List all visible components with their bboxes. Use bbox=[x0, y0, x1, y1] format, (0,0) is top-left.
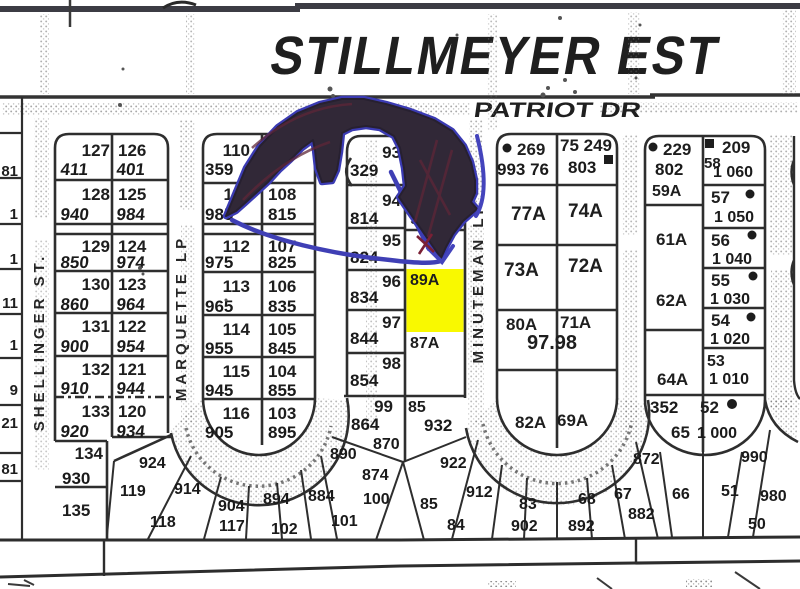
svg-text:66: 66 bbox=[672, 486, 690, 503]
svg-text:870: 870 bbox=[373, 436, 400, 453]
svg-text:890: 890 bbox=[330, 446, 357, 463]
svg-text:1: 1 bbox=[10, 206, 18, 223]
svg-text:SHELLINGER ST.: SHELLINGER ST. bbox=[31, 253, 48, 432]
svg-text:401: 401 bbox=[116, 160, 146, 179]
svg-text:123: 123 bbox=[118, 275, 146, 294]
svg-text:67: 67 bbox=[614, 486, 632, 503]
svg-text:133: 133 bbox=[82, 402, 110, 421]
svg-text:54: 54 bbox=[711, 311, 730, 330]
svg-text:116: 116 bbox=[223, 404, 250, 423]
svg-text:99: 99 bbox=[374, 397, 393, 416]
svg-text:975: 975 bbox=[205, 253, 233, 272]
svg-text:854: 854 bbox=[350, 371, 379, 390]
svg-text:9: 9 bbox=[10, 382, 18, 399]
svg-text:100: 100 bbox=[363, 491, 390, 508]
svg-text:940: 940 bbox=[60, 205, 90, 224]
svg-text:932: 932 bbox=[424, 416, 452, 435]
svg-text:229: 229 bbox=[663, 140, 691, 159]
svg-text:835: 835 bbox=[268, 297, 296, 316]
svg-text:84: 84 bbox=[447, 517, 465, 534]
svg-text:128: 128 bbox=[82, 185, 110, 204]
svg-text:912: 912 bbox=[466, 484, 493, 501]
svg-text:73A: 73A bbox=[504, 260, 539, 281]
svg-text:115: 115 bbox=[223, 362, 250, 381]
svg-text:59A: 59A bbox=[652, 183, 682, 200]
svg-text:101: 101 bbox=[331, 513, 358, 530]
svg-text:814: 814 bbox=[350, 209, 379, 228]
svg-text:924: 924 bbox=[139, 455, 166, 472]
svg-text:97: 97 bbox=[382, 313, 401, 332]
svg-text:993 76: 993 76 bbox=[497, 160, 549, 179]
svg-text:1 040: 1 040 bbox=[712, 251, 752, 268]
svg-text:89A: 89A bbox=[410, 272, 440, 289]
svg-text:895: 895 bbox=[268, 423, 296, 442]
svg-text:11: 11 bbox=[2, 295, 18, 312]
svg-text:1: 1 bbox=[10, 337, 18, 354]
svg-text:974: 974 bbox=[116, 253, 147, 272]
svg-text:955: 955 bbox=[205, 339, 233, 358]
svg-text:119: 119 bbox=[120, 483, 146, 500]
svg-text:894: 894 bbox=[263, 491, 290, 508]
svg-text:352: 352 bbox=[650, 398, 678, 417]
svg-text:834: 834 bbox=[350, 288, 379, 307]
svg-text:864: 864 bbox=[351, 415, 380, 434]
svg-text:882: 882 bbox=[628, 506, 655, 523]
svg-text:802: 802 bbox=[655, 160, 683, 179]
svg-text:920: 920 bbox=[60, 422, 90, 441]
svg-text:104: 104 bbox=[268, 362, 297, 381]
svg-text:PATRIOT DR: PATRIOT DR bbox=[472, 99, 642, 122]
svg-text:984: 984 bbox=[116, 205, 147, 224]
svg-text:945: 945 bbox=[205, 381, 233, 400]
svg-text:121: 121 bbox=[118, 360, 146, 379]
svg-text:120: 120 bbox=[118, 402, 146, 421]
svg-text:83: 83 bbox=[519, 496, 537, 513]
svg-text:905: 905 bbox=[205, 423, 233, 442]
svg-text:892: 892 bbox=[568, 518, 595, 535]
svg-text:1 020: 1 020 bbox=[710, 331, 750, 348]
svg-text:102: 102 bbox=[271, 521, 298, 538]
svg-text:118: 118 bbox=[150, 514, 176, 531]
svg-text:954: 954 bbox=[116, 337, 147, 356]
svg-text:845: 845 bbox=[268, 339, 296, 358]
svg-text:269: 269 bbox=[517, 140, 545, 159]
svg-text:127: 127 bbox=[82, 141, 110, 160]
svg-text:855: 855 bbox=[268, 381, 296, 400]
svg-text:113: 113 bbox=[223, 277, 250, 296]
svg-text:359: 359 bbox=[205, 160, 233, 179]
svg-text:914: 914 bbox=[174, 481, 201, 498]
svg-text:126: 126 bbox=[118, 141, 146, 160]
svg-text:910: 910 bbox=[60, 379, 90, 398]
svg-text:1 030: 1 030 bbox=[710, 291, 750, 308]
svg-text:1: 1 bbox=[10, 251, 18, 268]
svg-text:944: 944 bbox=[116, 379, 147, 398]
svg-text:114: 114 bbox=[223, 320, 251, 339]
svg-text:75 249: 75 249 bbox=[560, 136, 612, 155]
svg-text:902: 902 bbox=[511, 518, 538, 535]
svg-text:411: 411 bbox=[60, 160, 89, 179]
svg-text:56: 56 bbox=[711, 231, 730, 250]
svg-text:117: 117 bbox=[219, 518, 245, 535]
svg-text:96: 96 bbox=[382, 272, 401, 291]
svg-text:64A: 64A bbox=[657, 370, 688, 389]
svg-text:844: 844 bbox=[350, 329, 379, 348]
svg-text:1 010: 1 010 bbox=[709, 371, 749, 388]
svg-text:103: 103 bbox=[268, 404, 296, 423]
svg-text:930: 930 bbox=[62, 469, 90, 488]
svg-text:81: 81 bbox=[1, 461, 18, 478]
svg-text:52: 52 bbox=[700, 398, 719, 417]
svg-text:1 050: 1 050 bbox=[714, 209, 754, 226]
svg-text:900: 900 bbox=[60, 337, 90, 356]
svg-text:57: 57 bbox=[711, 188, 730, 207]
svg-text:1 060: 1 060 bbox=[713, 164, 753, 181]
svg-text:61A: 61A bbox=[656, 230, 687, 249]
svg-text:51: 51 bbox=[721, 483, 739, 500]
svg-text:825: 825 bbox=[268, 253, 296, 272]
svg-text:105: 105 bbox=[268, 320, 296, 339]
svg-text:MARQUETTE LP: MARQUETTE LP bbox=[173, 235, 190, 401]
svg-text:922: 922 bbox=[440, 455, 467, 472]
svg-text:135: 135 bbox=[62, 501, 90, 520]
svg-text:72A: 72A bbox=[568, 256, 603, 277]
svg-text:134: 134 bbox=[75, 444, 104, 463]
svg-text:132: 132 bbox=[82, 360, 110, 379]
svg-text:122: 122 bbox=[118, 317, 146, 336]
svg-text:209: 209 bbox=[722, 138, 750, 157]
svg-text:71A: 71A bbox=[560, 313, 591, 332]
svg-text:MINUTEMAN LP: MINUTEMAN LP bbox=[470, 201, 487, 364]
svg-text:1 000: 1 000 bbox=[697, 425, 737, 442]
svg-text:934: 934 bbox=[116, 422, 147, 441]
svg-text:85: 85 bbox=[408, 399, 426, 416]
svg-text:62A: 62A bbox=[656, 291, 687, 310]
svg-text:110: 110 bbox=[223, 141, 250, 160]
svg-text:97.98: 97.98 bbox=[527, 332, 577, 354]
svg-text:81: 81 bbox=[1, 163, 18, 180]
svg-text:95: 95 bbox=[382, 231, 401, 250]
svg-text:98: 98 bbox=[382, 354, 401, 373]
svg-text:108: 108 bbox=[268, 185, 296, 204]
svg-text:74A: 74A bbox=[568, 201, 603, 222]
svg-text:85: 85 bbox=[420, 496, 438, 513]
svg-text:874: 874 bbox=[362, 467, 389, 484]
svg-text:860: 860 bbox=[60, 295, 90, 314]
svg-text:131: 131 bbox=[82, 317, 110, 336]
svg-text:964: 964 bbox=[116, 295, 147, 314]
svg-text:125: 125 bbox=[118, 185, 146, 204]
svg-text:53: 53 bbox=[707, 353, 725, 370]
svg-text:69A: 69A bbox=[557, 411, 588, 430]
svg-text:872: 872 bbox=[633, 451, 660, 468]
svg-text:21: 21 bbox=[1, 415, 18, 432]
svg-text:87A: 87A bbox=[410, 335, 440, 352]
svg-text:82A: 82A bbox=[515, 413, 546, 432]
svg-text:50: 50 bbox=[748, 516, 766, 533]
svg-text:803: 803 bbox=[568, 158, 596, 177]
svg-text:65: 65 bbox=[671, 423, 690, 442]
svg-text:904: 904 bbox=[218, 498, 245, 515]
svg-text:980: 980 bbox=[760, 488, 787, 505]
svg-text:884: 884 bbox=[308, 488, 335, 505]
svg-text:106: 106 bbox=[268, 277, 296, 296]
svg-text:68: 68 bbox=[578, 491, 596, 508]
svg-text:329: 329 bbox=[350, 161, 378, 180]
svg-text:815: 815 bbox=[268, 205, 296, 224]
svg-text:130: 130 bbox=[82, 275, 110, 294]
svg-text:55: 55 bbox=[711, 271, 730, 290]
svg-text:77A: 77A bbox=[511, 204, 546, 225]
svg-text:965: 965 bbox=[205, 297, 233, 316]
svg-text:990: 990 bbox=[741, 449, 768, 466]
svg-text:850: 850 bbox=[60, 253, 90, 272]
